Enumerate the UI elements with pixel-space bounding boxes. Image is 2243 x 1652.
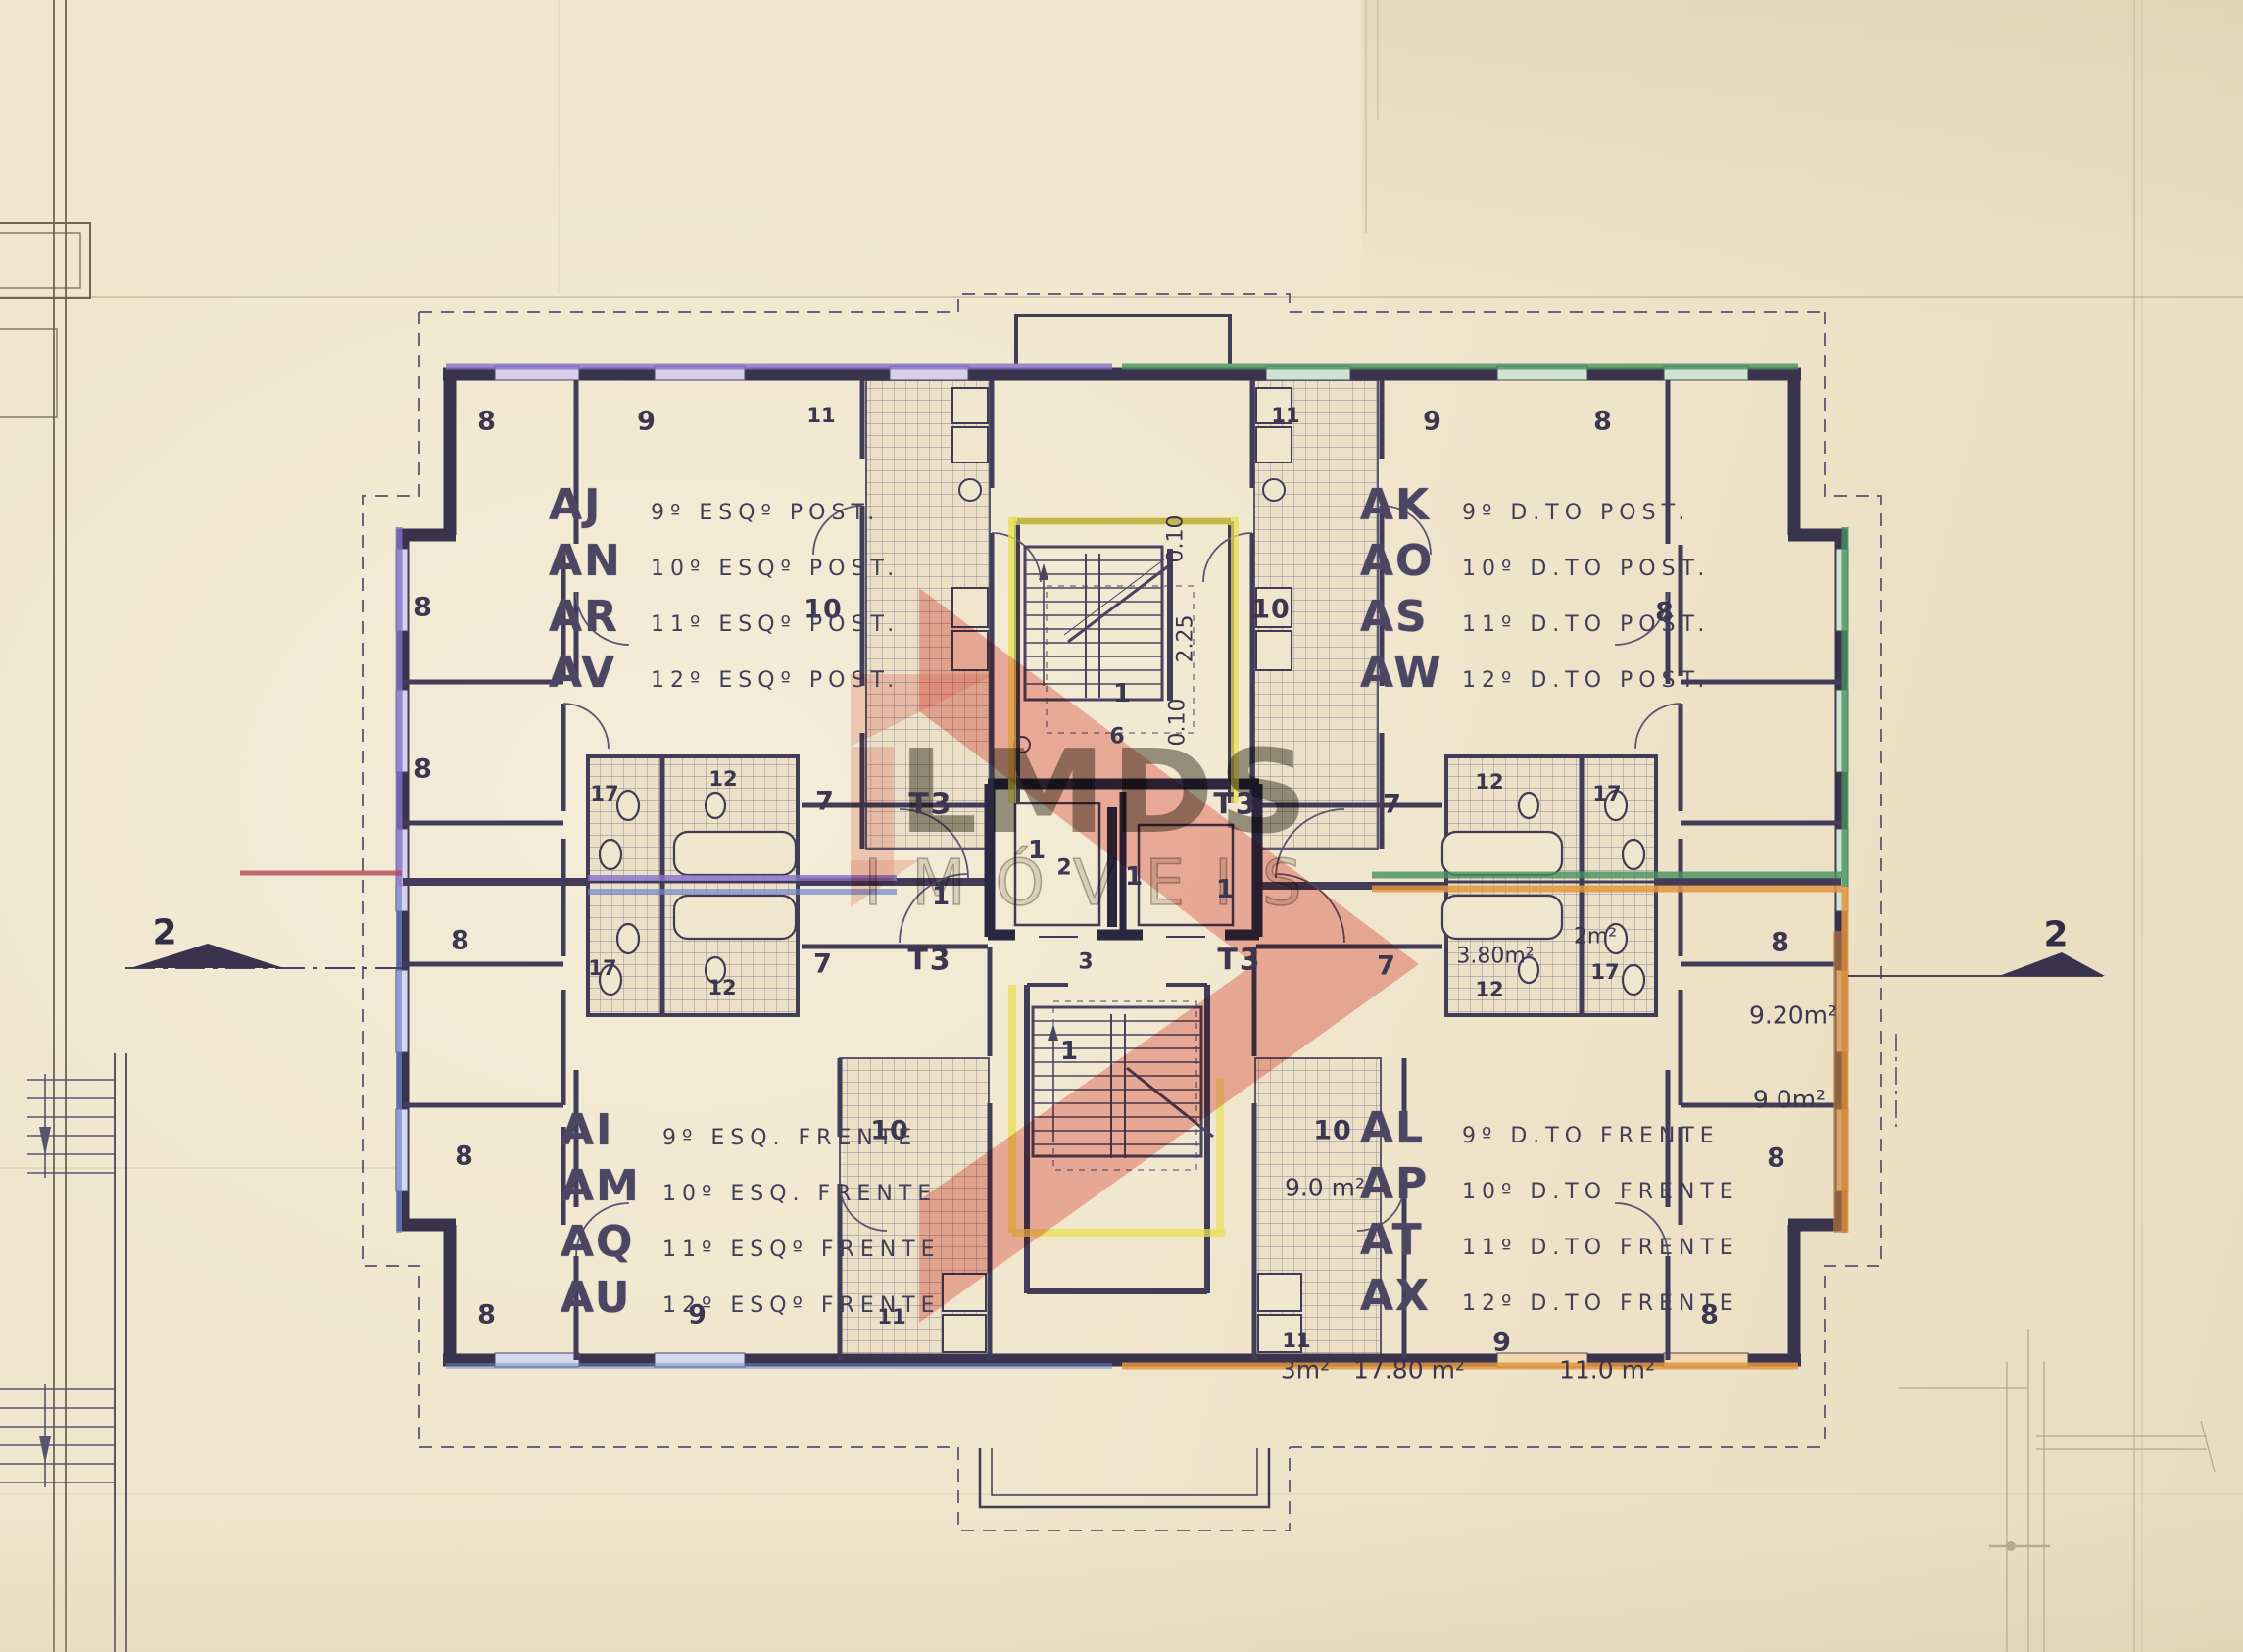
unit-label-row: AM10º ESQ. FRENTE (561, 1161, 941, 1217)
apartment-code: AX (1360, 1271, 1462, 1321)
apartment-code: AW (1360, 648, 1462, 698)
room-area-label: 3.80m² (1456, 945, 1534, 969)
room-number-label: 12 (1475, 978, 1503, 1001)
room-area-label: 11.0 m² (1559, 1356, 1655, 1385)
apartment-code: AO (1360, 536, 1462, 586)
apartment-floor-label: 9º ESQº POST. (651, 501, 880, 525)
unit-label-row: AK9º D.TO POST. (1360, 480, 1710, 536)
core-number-label: 1 (932, 882, 950, 911)
core-number-label: 1 (1125, 862, 1143, 892)
unit-label-row: AO10º D.TO POST. (1360, 536, 1710, 592)
unit-label-row: AT11º D.TO FRENTE (1360, 1215, 1739, 1271)
unit-label-row: AQ11º ESQº FRENTE (561, 1217, 941, 1273)
room-area-label: 9.20m² (1749, 1001, 1837, 1030)
dimension-label: 2.25 (1174, 615, 1198, 663)
apartment-code: AI (561, 1105, 662, 1155)
room-number-label: 8 (1771, 928, 1790, 958)
room-number-label: 11 (806, 404, 835, 427)
room-number-label: 8 (1593, 407, 1613, 437)
apartment-code: AN (549, 536, 651, 586)
room-number-label: 17 (588, 956, 616, 980)
apartment-type-label: T3 (1213, 788, 1257, 822)
room-number-label: 7 (1383, 790, 1402, 820)
unit-label-block: AJ9º ESQº POST.AN10º ESQº POST.AR11º ESQ… (549, 480, 900, 704)
room-number-label: 17 (590, 782, 618, 805)
room-area-label: 3m² (1281, 1356, 1330, 1385)
room-number-label: 8 (477, 1300, 497, 1331)
apartment-floor-label: 12º ESQº FRENTE (662, 1293, 941, 1318)
apartment-type-label: T3 (907, 944, 951, 978)
unit-label-row: AN10º ESQº POST. (549, 536, 900, 592)
room-number-label: 8 (451, 926, 470, 956)
room-number-label: 17 (1592, 782, 1621, 805)
room-number-label: 12 (1475, 770, 1503, 794)
blueprint-sheet: LMDS IMÓVEIS 8911101198108888889.20m²9.0… (0, 0, 2243, 1652)
apartment-floor-label: 11º D.TO POST. (1462, 612, 1710, 637)
core-number-label: 2 (1056, 856, 1071, 881)
room-number-label: 8 (414, 754, 433, 785)
apartment-floor-label: 9º D.TO FRENTE (1462, 1124, 1720, 1148)
unit-label-block: AL9º D.TO FRENTEAP10º D.TO FRENTEAT11º D… (1360, 1103, 1739, 1327)
room-number-label: 8 (477, 407, 497, 437)
room-number-label: 9 (637, 407, 657, 437)
room-number-label: 9 (1492, 1328, 1512, 1358)
dimension-label: 0.10 (1166, 699, 1191, 747)
annotation-layer: LMDS IMÓVEIS 8911101198108888889.20m²9.0… (0, 0, 2243, 1652)
core-number-label: 1 (1060, 1037, 1078, 1066)
core-number-label: 1 (1216, 875, 1234, 904)
core-number-label: 3 (1078, 950, 1093, 975)
unit-label-row: AL9º D.TO FRENTE (1360, 1103, 1739, 1159)
room-area-label: 9.0m² (1753, 1086, 1826, 1114)
core-number-label: 1 (1028, 836, 1046, 865)
room-number-label: 7 (1377, 951, 1396, 982)
apartment-floor-label: 10º ESQº POST. (651, 557, 900, 581)
apartment-code: AR (549, 592, 651, 642)
dimension-label: 0.10 (1164, 515, 1189, 563)
room-number-label: 10 (1251, 595, 1291, 625)
room-number-label: 11 (1271, 404, 1299, 427)
room-number-label: 17 (1590, 960, 1619, 984)
unit-label-row: AS11º D.TO POST. (1360, 592, 1710, 648)
apartment-code: AS (1360, 592, 1462, 642)
unit-label-row: AW12º D.TO POST. (1360, 648, 1710, 704)
room-number-label: 12 (707, 976, 736, 999)
room-number-label: 11 (1282, 1329, 1310, 1352)
section-marker-label: 2 (152, 913, 176, 953)
core-number-label: 1 (1113, 679, 1131, 708)
unit-label-row: AU12º ESQº FRENTE (561, 1273, 941, 1329)
apartment-floor-label: 11º D.TO FRENTE (1462, 1236, 1739, 1260)
room-number-label: 12 (708, 767, 737, 791)
apartment-type-label: T3 (908, 788, 952, 822)
room-area-label: 9.0 m² (1285, 1174, 1365, 1202)
apartment-floor-label: 9º ESQ. FRENTE (662, 1126, 917, 1150)
apartment-code: AP (1360, 1159, 1462, 1209)
room-number-label: 8 (414, 593, 433, 623)
apartment-floor-label: 12º ESQº POST. (651, 668, 900, 693)
apartment-floor-label: 10º ESQ. FRENTE (662, 1182, 937, 1206)
section-marker-label: 2 (2043, 915, 2068, 955)
apartment-type-label: T3 (1217, 944, 1261, 978)
apartment-code: AJ (549, 480, 651, 530)
apartment-floor-label: 11º ESQº POST. (651, 612, 900, 637)
room-number-label: 7 (813, 949, 833, 980)
unit-label-row: AR11º ESQº POST. (549, 592, 900, 648)
room-area-label: 2m² (1574, 925, 1617, 949)
unit-label-block: AI9º ESQ. FRENTEAM10º ESQ. FRENTEAQ11º E… (561, 1105, 941, 1329)
apartment-floor-label: 10º D.TO FRENTE (1462, 1180, 1739, 1204)
apartment-code: AV (549, 648, 651, 698)
apartment-code: AQ (561, 1217, 662, 1267)
room-number-label: 10 (1313, 1116, 1352, 1146)
room-number-label: 9 (1423, 407, 1442, 437)
unit-label-row: AX12º D.TO FRENTE (1360, 1271, 1739, 1327)
room-number-label: 8 (1767, 1143, 1786, 1174)
core-number-label: 6 (1109, 725, 1124, 750)
apartment-floor-label: 12º D.TO POST. (1462, 668, 1710, 693)
room-number-label: 8 (455, 1142, 474, 1172)
unit-label-row: AV12º ESQº POST. (549, 648, 900, 704)
unit-label-row: AI9º ESQ. FRENTE (561, 1105, 941, 1161)
apartment-floor-label: 12º D.TO FRENTE (1462, 1291, 1739, 1316)
apartment-code: AM (561, 1161, 662, 1211)
apartment-code: AL (1360, 1103, 1462, 1153)
apartment-code: AT (1360, 1215, 1462, 1265)
apartment-floor-label: 11º ESQº FRENTE (662, 1238, 941, 1262)
apartment-floor-label: 9º D.TO POST. (1462, 501, 1690, 525)
unit-label-block: AK9º D.TO POST.AO10º D.TO POST.AS11º D.T… (1360, 480, 1710, 704)
apartment-code: AK (1360, 480, 1462, 530)
apartment-floor-label: 10º D.TO POST. (1462, 557, 1710, 581)
room-area-label: 17.80 m² (1353, 1356, 1465, 1385)
unit-label-row: AP10º D.TO FRENTE (1360, 1159, 1739, 1215)
unit-label-row: AJ9º ESQº POST. (549, 480, 900, 536)
apartment-code: AU (561, 1273, 662, 1323)
room-number-label: 7 (815, 787, 835, 817)
